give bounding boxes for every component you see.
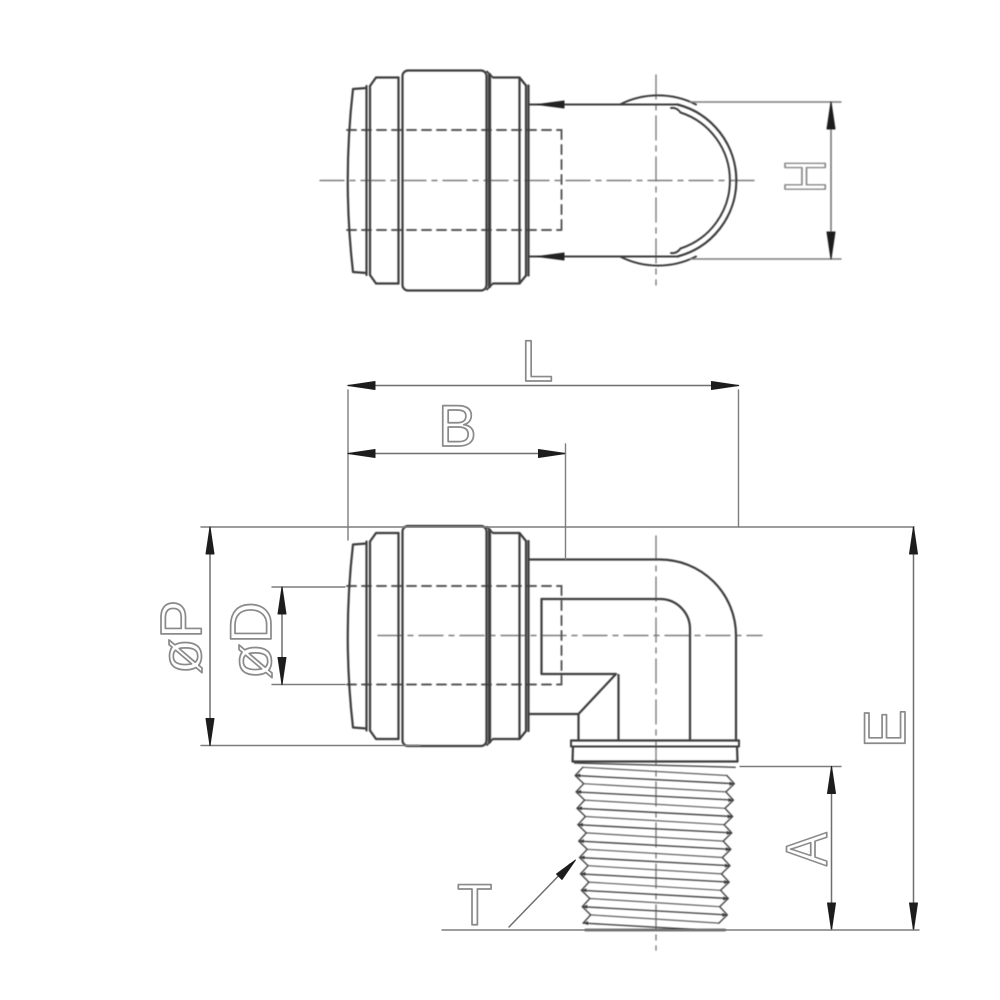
svg-text:øP: øP — [149, 600, 214, 674]
svg-text:H: H — [773, 159, 838, 193]
svg-text:øD: øD — [219, 602, 284, 679]
svg-text:B: B — [438, 394, 477, 459]
svg-text:T: T — [457, 873, 492, 938]
svg-text:E: E — [853, 709, 918, 748]
svg-text:L: L — [521, 329, 553, 394]
svg-text:A: A — [775, 832, 840, 866]
